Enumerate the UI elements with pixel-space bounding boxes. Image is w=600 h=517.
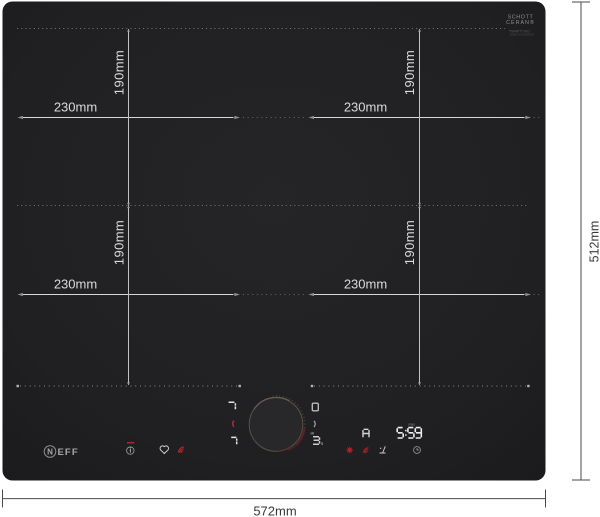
svg-text:N: N [47,448,53,457]
svg-text:MADE IN GERMANY: MADE IN GERMANY [510,32,535,36]
svg-text:572mm: 572mm [253,504,296,517]
svg-text:190mm: 190mm [112,50,127,95]
svg-text:HI: HI [311,432,315,436]
svg-text:max: max [408,422,415,426]
svg-text:190mm: 190mm [402,50,417,95]
svg-text:230mm: 230mm [344,100,387,115]
svg-text:190mm: 190mm [112,220,127,265]
svg-text:CERAN®: CERAN® [506,19,535,26]
svg-text:230mm: 230mm [344,277,387,292]
svg-text:230mm: 230mm [54,100,97,115]
svg-text:190mm: 190mm [402,220,417,265]
svg-text:EFF: EFF [58,447,79,458]
svg-text:512mm: 512mm [588,221,600,263]
svg-text:230mm: 230mm [54,277,97,292]
